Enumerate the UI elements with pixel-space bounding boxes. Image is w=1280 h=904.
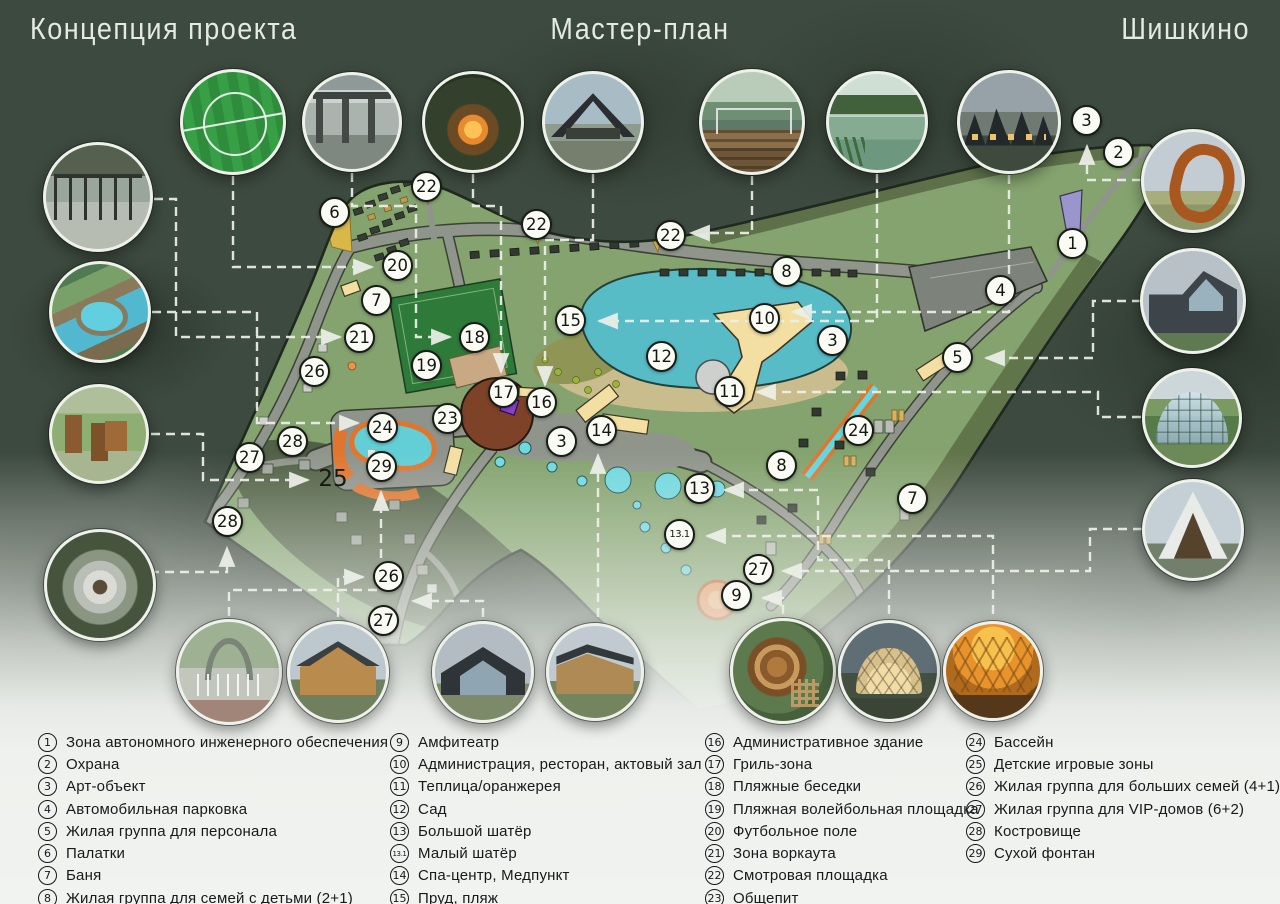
page-title-masterplan: Мастер-план bbox=[550, 12, 729, 47]
legend-label: Пруд, пляж bbox=[418, 890, 498, 904]
legend-label: Гриль-зона bbox=[733, 756, 812, 773]
legend-label: Административное здание bbox=[733, 734, 923, 751]
legend-label: Жилая группа для семей с детьми (2+1) bbox=[66, 890, 353, 904]
legend-item-22: 22Смотровая площадка bbox=[705, 865, 979, 887]
photo-fire-table bbox=[422, 71, 524, 173]
legend-label: Сад bbox=[418, 801, 447, 818]
map-marker-17: 17 bbox=[488, 377, 519, 408]
photo-kids-playground bbox=[49, 384, 149, 484]
map-marker-8: 8 bbox=[766, 450, 797, 481]
legend-number: 17 bbox=[705, 755, 724, 774]
legend-item-16: 16Административное здание bbox=[705, 731, 979, 753]
map-marker-29: 29 bbox=[366, 451, 397, 482]
legend-item-7: 7Баня bbox=[38, 865, 388, 887]
map-marker-7: 7 bbox=[897, 483, 928, 514]
map-marker-27: 27 bbox=[234, 442, 265, 473]
photo-a-frame-house bbox=[1142, 479, 1244, 581]
legend-item-5: 5Жилая группа для персонала bbox=[38, 820, 388, 842]
map-marker-8: 8 bbox=[771, 256, 802, 287]
map-marker-18: 18 bbox=[459, 322, 490, 353]
legend-item-9: 9Амфитеатр bbox=[390, 731, 702, 753]
legend-label: Костровище bbox=[994, 823, 1081, 840]
legend-item-13.1: 13.1Малый шатёр bbox=[390, 842, 702, 864]
legend-label: Жилая группа для больших семей (4+1) bbox=[994, 778, 1280, 795]
map-marker-24: 24 bbox=[843, 415, 874, 446]
map-marker-10: 10 bbox=[749, 303, 780, 334]
legend-column-2: 9Амфитеатр10Администрация, ресторан, акт… bbox=[390, 731, 702, 904]
legend-number: 19 bbox=[705, 800, 724, 819]
legend-item-27: 27Жилая группа для VIP-домов (6+2) bbox=[966, 798, 1280, 820]
legend-item-3: 3Арт-объект bbox=[38, 776, 388, 798]
legend-item-17: 17Гриль-зона bbox=[705, 753, 979, 775]
legend-number: 2 bbox=[38, 755, 57, 774]
legend-label: Зона автономного инженерного обеспечения bbox=[66, 734, 388, 751]
legend-number: 6 bbox=[38, 844, 57, 863]
legend-label: Пляжные беседки bbox=[733, 778, 861, 795]
legend-item-2: 2Охрана bbox=[38, 753, 388, 775]
legend-label: Баня bbox=[66, 867, 101, 884]
legend-item-15: 15Пруд, пляж bbox=[390, 887, 702, 904]
legend-label: Футбольное поле bbox=[733, 823, 857, 840]
legend-number: 27 bbox=[966, 800, 985, 819]
map-marker-19: 19 bbox=[411, 350, 442, 381]
legend-label: Спа-центр, Медпункт bbox=[418, 867, 570, 884]
legend-number: 13 bbox=[390, 822, 409, 841]
legend-label: Администрация, ресторан, актовый зал bbox=[418, 756, 702, 773]
legend-label: Автомобильная парковка bbox=[66, 801, 247, 818]
legend-item-19: 19Пляжная волейбольная площадка bbox=[705, 798, 979, 820]
legend-item-25: 25Детские игровые зоны bbox=[966, 753, 1280, 775]
photo-glass-dome bbox=[1142, 368, 1242, 468]
map-marker-21: 21 bbox=[344, 322, 375, 353]
legend-item-28: 28Костровище bbox=[966, 820, 1280, 842]
photo-workout-area bbox=[43, 142, 153, 252]
map-marker-4: 4 bbox=[985, 275, 1016, 306]
legend-number: 25 bbox=[966, 755, 985, 774]
legend-item-13: 13Большой шатёр bbox=[390, 820, 702, 842]
legend-number: 3 bbox=[38, 777, 57, 796]
map-marker-26: 26 bbox=[373, 561, 404, 592]
legend-number: 9 bbox=[390, 733, 409, 752]
photo-dry-fountain-park bbox=[176, 619, 282, 725]
map-label-25: 25 bbox=[318, 466, 347, 492]
legend-label: Сухой фонтан bbox=[994, 845, 1095, 862]
legend-number: 8 bbox=[38, 889, 57, 904]
legend-label: Большой шатёр bbox=[418, 823, 532, 840]
legend-label: Палатки bbox=[66, 845, 125, 862]
legend-item-23: 23Общепит bbox=[705, 887, 979, 904]
legend-item-14: 14Спа-центр, Медпункт bbox=[390, 865, 702, 887]
legend-label: Арт-объект bbox=[66, 778, 146, 795]
legend-number: 20 bbox=[705, 822, 724, 841]
legend-number: 14 bbox=[390, 866, 409, 885]
map-marker-13: 13 bbox=[684, 473, 715, 504]
legend-item-21: 21Зона воркаута bbox=[705, 842, 979, 864]
legend-column-4: 24Бассейн25Детские игровые зоны26Жилая г… bbox=[966, 731, 1280, 865]
map-marker-24: 24 bbox=[367, 412, 398, 443]
legend-label: Жилая группа для VIP-домов (6+2) bbox=[994, 801, 1244, 818]
photo-art-sculpture bbox=[1141, 129, 1245, 233]
legend-number: 18 bbox=[705, 777, 724, 796]
map-marker-9: 9 bbox=[721, 580, 752, 611]
map-marker-28: 28 bbox=[277, 426, 308, 457]
legend-item-6: 6Палатки bbox=[38, 842, 388, 864]
legend-number: 21 bbox=[705, 844, 724, 863]
map-marker-14: 14 bbox=[586, 415, 617, 446]
photo-pergola-lounge bbox=[302, 72, 402, 172]
map-marker-12: 12 bbox=[646, 341, 677, 372]
map-marker-3: 3 bbox=[817, 325, 848, 356]
legend-label: Детские игровые зоны bbox=[994, 756, 1154, 773]
photo-modern-cabins bbox=[957, 70, 1061, 174]
legend-number: 22 bbox=[705, 866, 724, 885]
legend-number: 15 bbox=[390, 889, 409, 904]
legend-label: Жилая группа для персонала bbox=[66, 823, 277, 840]
map-marker-3: 3 bbox=[546, 426, 577, 457]
legend-item-18: 18Пляжные беседки bbox=[705, 776, 979, 798]
photo-football-field bbox=[180, 69, 286, 175]
map-marker-15: 15 bbox=[555, 305, 586, 336]
map-marker-27: 27 bbox=[368, 605, 399, 636]
legend-number: 10 bbox=[390, 755, 409, 774]
legend-number: 26 bbox=[966, 777, 985, 796]
legend-label: Теплица/оранжерея bbox=[418, 778, 561, 795]
photo-amphitheater bbox=[730, 618, 836, 724]
map-marker-22: 22 bbox=[411, 171, 442, 202]
photo-dome-tent bbox=[838, 620, 940, 722]
legend-number: 16 bbox=[705, 733, 724, 752]
page-title-location: Шишкино bbox=[1121, 12, 1250, 47]
photo-wood-cabin bbox=[287, 621, 389, 723]
legend-number: 23 bbox=[705, 889, 724, 904]
legend-number: 29 bbox=[966, 844, 985, 863]
legend-column-1: 1Зона автономного инженерного обеспечени… bbox=[38, 731, 388, 904]
map-marker-2: 2 bbox=[1103, 137, 1134, 168]
legend-label: Амфитеатр bbox=[418, 734, 499, 751]
map-marker-22: 22 bbox=[521, 209, 552, 240]
photo-lake bbox=[826, 71, 928, 173]
map-marker-16: 16 bbox=[526, 387, 557, 418]
map-marker-7: 7 bbox=[361, 285, 392, 316]
map-marker-28: 28 bbox=[212, 506, 243, 537]
map-marker-6: 6 bbox=[319, 197, 350, 228]
photo-orange-canopy bbox=[943, 621, 1043, 721]
photo-gable-house bbox=[1140, 248, 1246, 354]
legend-number: 12 bbox=[390, 800, 409, 819]
legend-label: Общепит bbox=[733, 890, 799, 904]
legend-item-12: 12Сад bbox=[390, 798, 702, 820]
legend-number: 1 bbox=[38, 733, 57, 752]
legend-column-3: 16Административное здание17Гриль-зона18П… bbox=[705, 731, 979, 904]
legend-label: Охрана bbox=[66, 756, 120, 773]
page-title-concept: Концепция проекта bbox=[30, 12, 298, 47]
legend-label: Зона воркаута bbox=[733, 845, 836, 862]
map-marker-27: 27 bbox=[743, 554, 774, 585]
legend-number: 28 bbox=[966, 822, 985, 841]
legend-number: 24 bbox=[966, 733, 985, 752]
map-marker-11: 11 bbox=[714, 376, 745, 407]
legend-label: Бассейн bbox=[994, 734, 1054, 751]
photo-dark-pavilion bbox=[542, 71, 644, 173]
legend-item-24: 24Бассейн bbox=[966, 731, 1280, 753]
legend-number: 5 bbox=[38, 822, 57, 841]
map-marker-26: 26 bbox=[299, 356, 330, 387]
photo-glass-gable-house bbox=[432, 621, 534, 723]
legend-number: 13.1 bbox=[390, 844, 409, 863]
photo-modern-cabin bbox=[546, 623, 644, 721]
legend-item-26: 26Жилая группа для больших семей (4+1) bbox=[966, 776, 1280, 798]
legend-label: Пляжная волейбольная площадка bbox=[733, 801, 979, 818]
legend-item-11: 11Теплица/оранжерея bbox=[390, 776, 702, 798]
legend-item-10: 10Администрация, ресторан, актовый зал bbox=[390, 753, 702, 775]
map-marker-3: 3 bbox=[1071, 105, 1102, 136]
photo-wooden-deck bbox=[699, 69, 805, 175]
map-marker-20: 20 bbox=[382, 250, 413, 281]
legend-number: 4 bbox=[38, 800, 57, 819]
map-marker-5: 5 bbox=[942, 342, 973, 373]
map-marker-13.1: 13.1 bbox=[664, 519, 695, 550]
legend-item-29: 29Сухой фонтан bbox=[966, 842, 1280, 864]
photo-pool-resort bbox=[49, 261, 151, 363]
legend-item-8: 8Жилая группа для семей с детьми (2+1) bbox=[38, 887, 388, 904]
map-marker-23: 23 bbox=[432, 403, 463, 434]
map-marker-22: 22 bbox=[655, 220, 686, 251]
legend-number: 11 bbox=[390, 777, 409, 796]
legend-number: 7 bbox=[38, 866, 57, 885]
master-plan-poster: 2262222208715102118312231452619171611232… bbox=[0, 0, 1280, 904]
map-marker-1: 1 bbox=[1057, 228, 1088, 259]
legend-item-20: 20Футбольное поле bbox=[705, 820, 979, 842]
legend-item-1: 1Зона автономного инженерного обеспечени… bbox=[38, 731, 388, 753]
legend-item-4: 4Автомобильная парковка bbox=[38, 798, 388, 820]
legend-label: Смотровая площадка bbox=[733, 867, 888, 884]
photo-fire-pit-circle bbox=[44, 529, 156, 641]
legend-label: Малый шатёр bbox=[418, 845, 517, 862]
